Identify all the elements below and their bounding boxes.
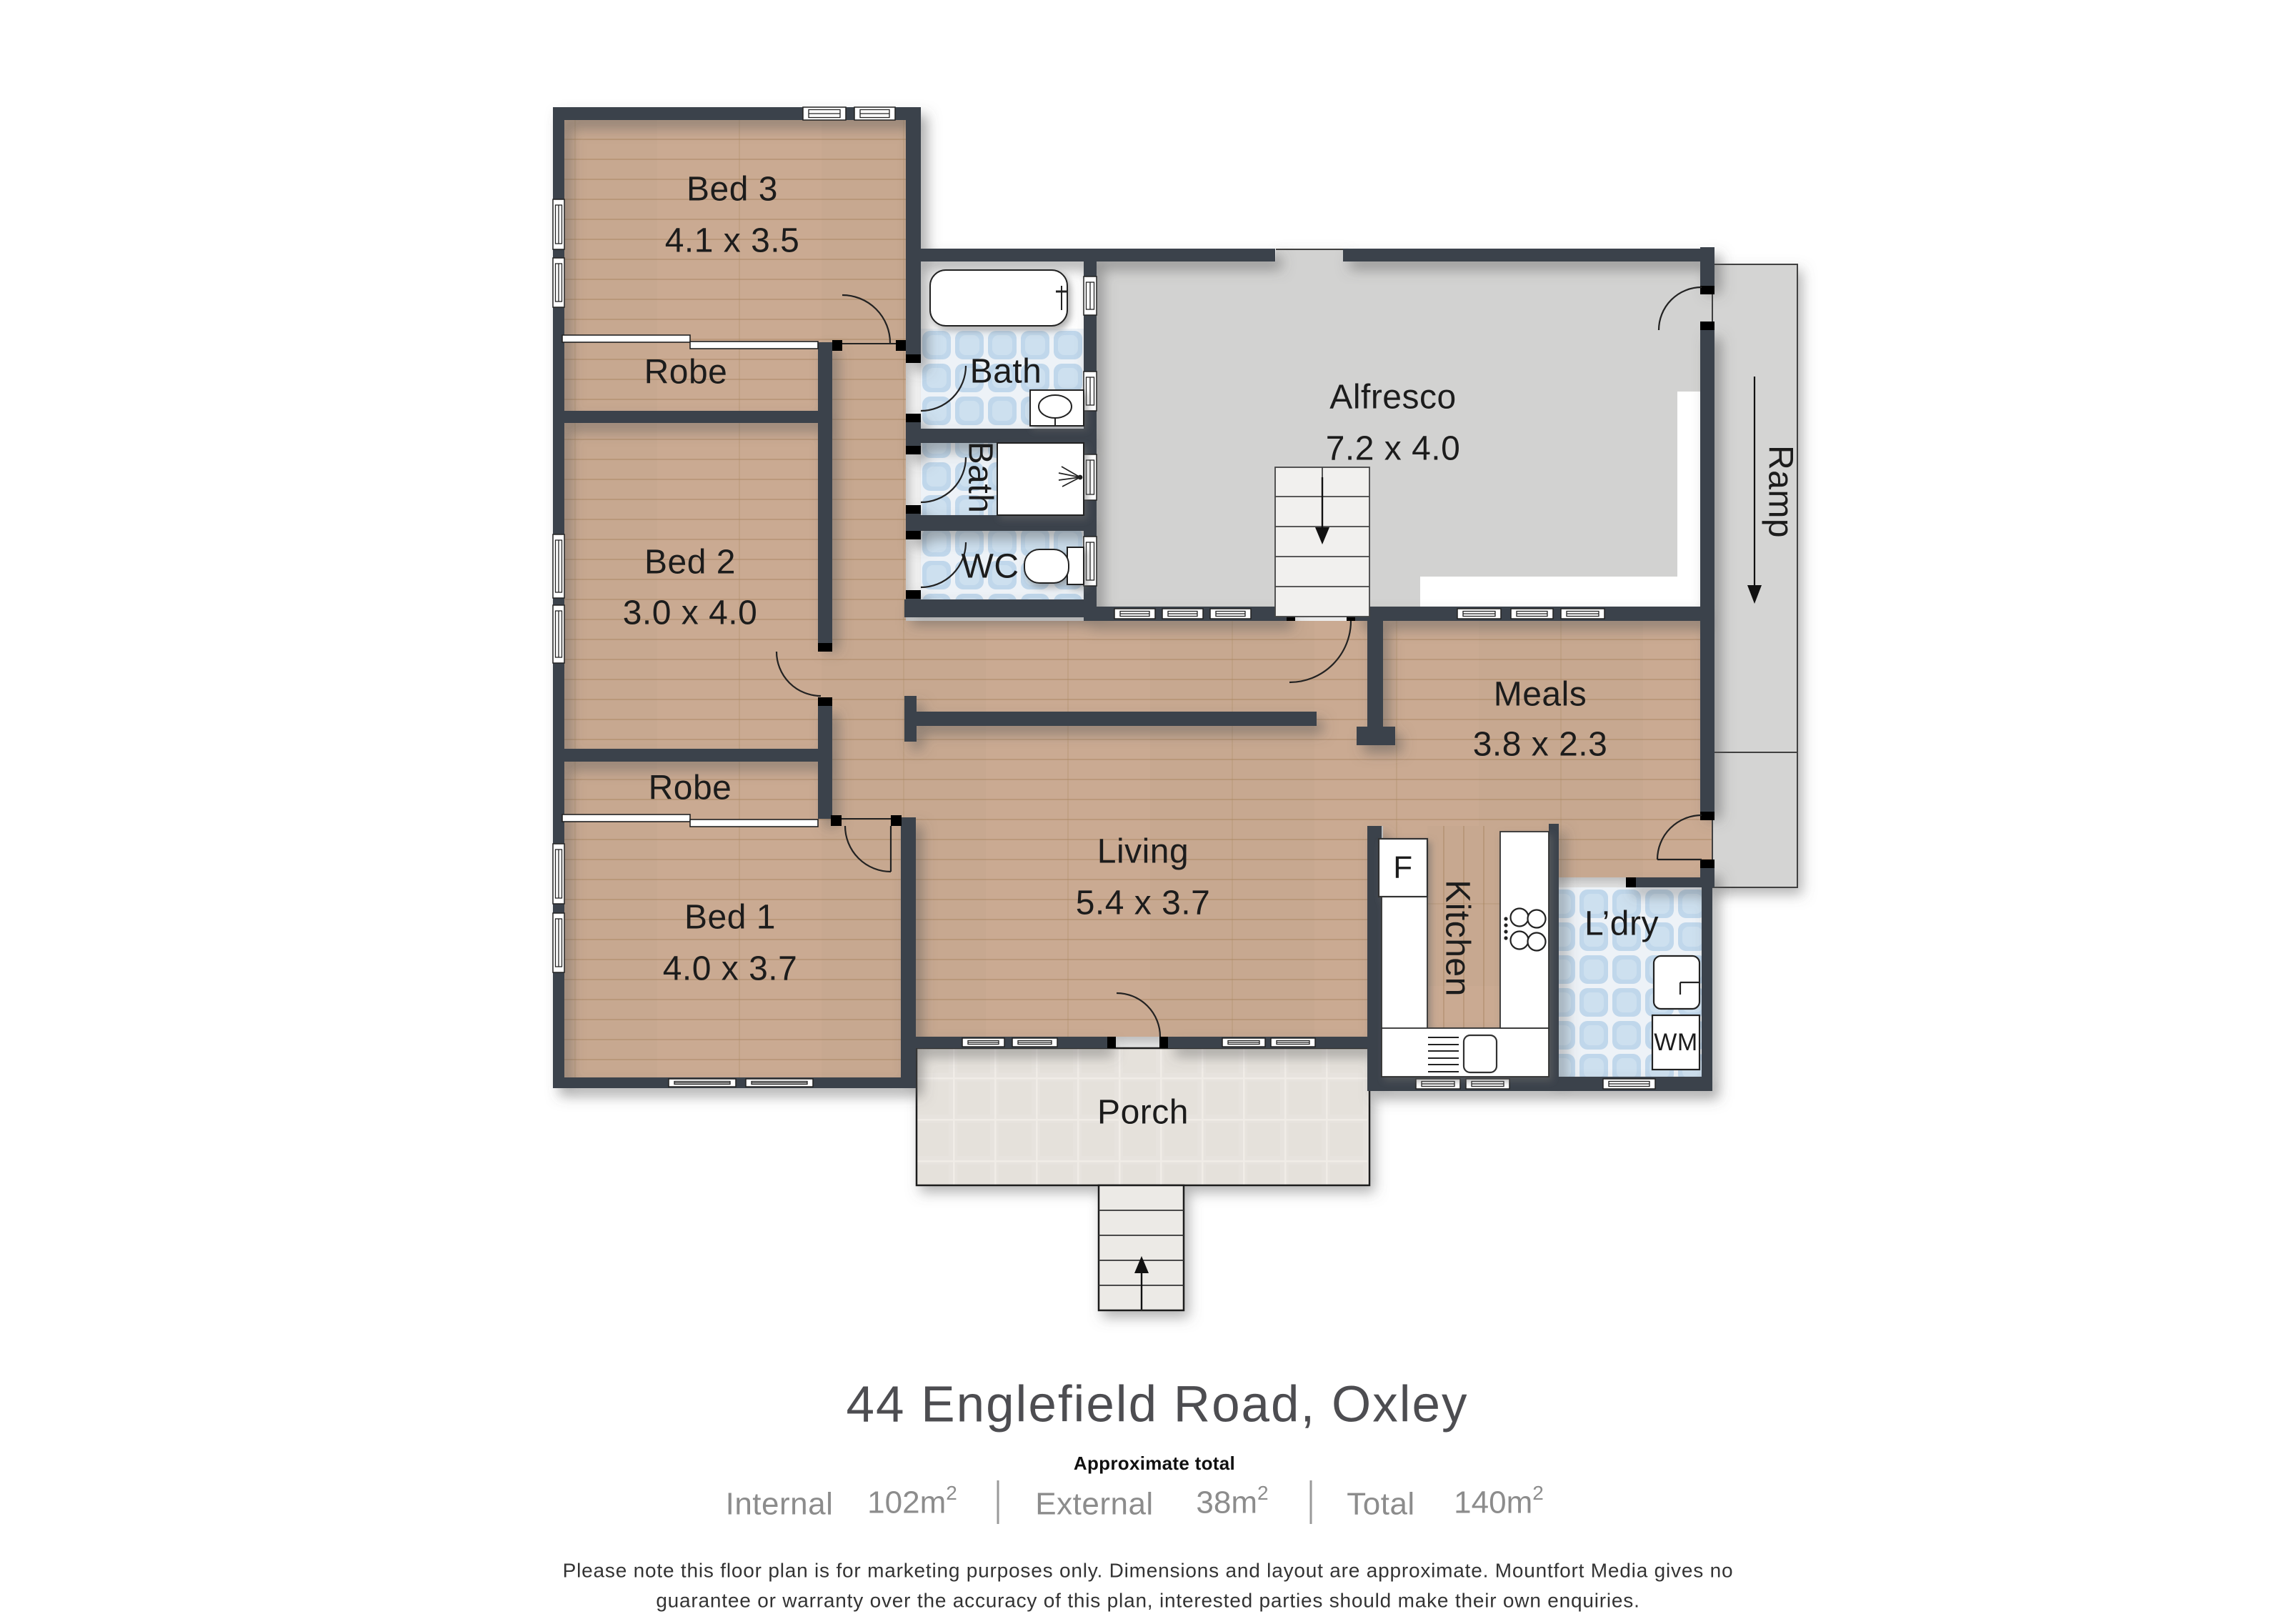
svg-text:WC: WC (962, 548, 1019, 586)
svg-text:38m2: 38m2 (1196, 1482, 1268, 1520)
svg-text:Porch: Porch (1097, 1094, 1189, 1132)
svg-text:L’dry: L’dry (1584, 905, 1659, 943)
svg-text:Living: Living (1097, 833, 1189, 871)
svg-text:guarantee or warranty over the: guarantee or warranty over the accuracy … (656, 1590, 1639, 1612)
svg-text:Ramp: Ramp (1762, 445, 1800, 538)
svg-text:Meals: Meals (1494, 676, 1587, 714)
svg-text:102m2: 102m2 (867, 1482, 957, 1520)
svg-text:Robe: Robe (644, 354, 728, 392)
svg-text:7.2 x 4.0: 7.2 x 4.0 (1326, 430, 1461, 468)
svg-text:F: F (1393, 850, 1412, 885)
svg-text:3.0 x 4.0: 3.0 x 4.0 (623, 594, 758, 632)
svg-text:External: External (1035, 1487, 1153, 1522)
svg-text:Bath: Bath (962, 442, 999, 514)
svg-text:Total: Total (1347, 1487, 1414, 1522)
svg-text:Kitchen: Kitchen (1439, 880, 1477, 997)
svg-text:4.0 x 3.7: 4.0 x 3.7 (663, 950, 798, 988)
svg-text:44 Englefield Road, Oxley: 44 Englefield Road, Oxley (847, 1377, 1469, 1433)
svg-text:Bed 2: Bed 2 (644, 544, 736, 582)
svg-text:Bath: Bath (970, 353, 1042, 391)
svg-text:Bed 1: Bed 1 (684, 899, 776, 937)
svg-text:Please note this floor plan is: Please note this floor plan is for marke… (563, 1560, 1734, 1582)
svg-text:5.4 x 3.7: 5.4 x 3.7 (1076, 885, 1211, 922)
svg-text:Bed 3: Bed 3 (687, 171, 778, 209)
svg-text:Alfresco: Alfresco (1329, 379, 1456, 417)
svg-text:3.8 x 2.3: 3.8 x 2.3 (1473, 726, 1608, 764)
svg-text:4.1 x 3.5: 4.1 x 3.5 (665, 222, 800, 260)
svg-text:Internal: Internal (726, 1487, 834, 1522)
svg-text:Approximate total: Approximate total (1074, 1453, 1235, 1474)
svg-text:140m2: 140m2 (1454, 1482, 1544, 1520)
svg-text:WM: WM (1654, 1029, 1697, 1056)
svg-text:Robe: Robe (649, 769, 732, 807)
